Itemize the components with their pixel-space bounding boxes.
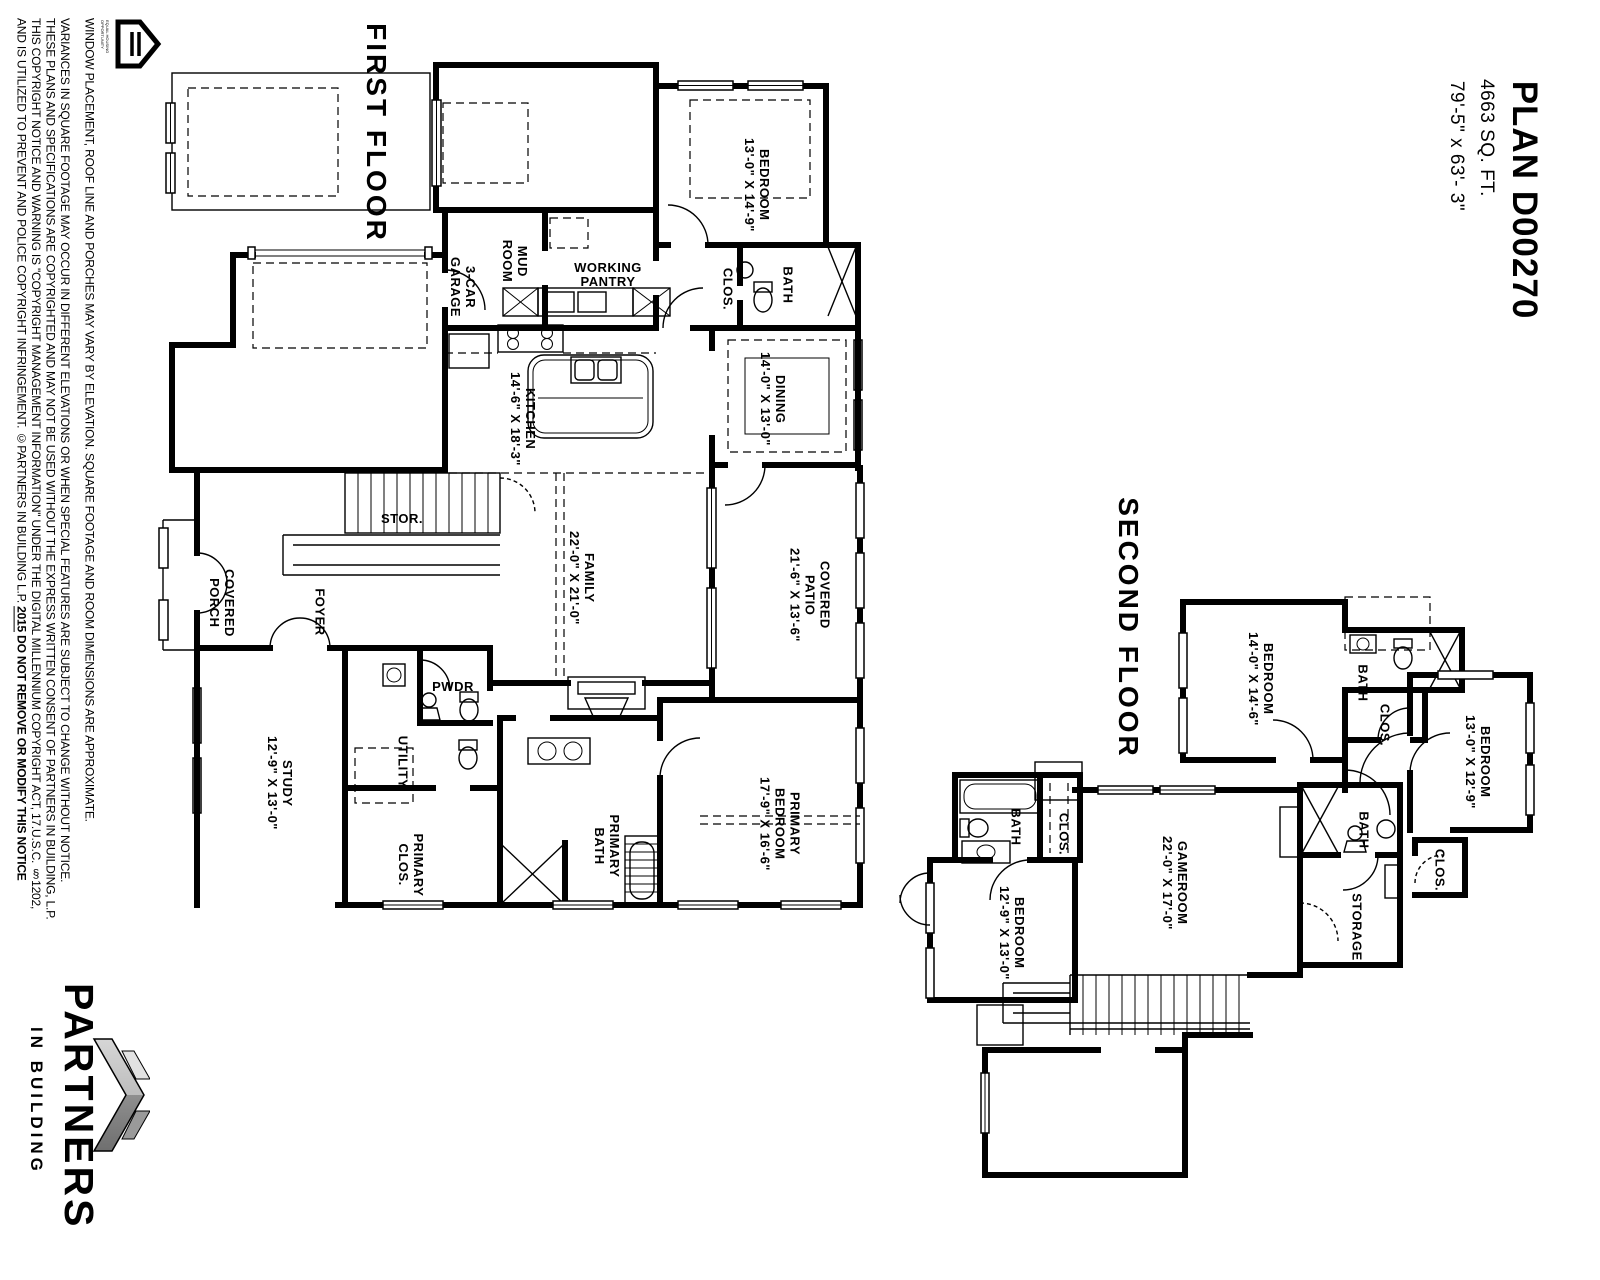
room-dims: 12'-9" X 13'-0"	[265, 736, 280, 830]
room-name: PORCH	[207, 569, 222, 637]
room-name: PANTRY	[574, 275, 642, 289]
disclaimer-line: THESE PLANS AND SPECIFICATIONS ARE COPYR…	[43, 18, 58, 993]
equal-housing-caption: EQUAL HOUSING OPPORTUNITY	[100, 20, 110, 76]
room-name: WORKING	[574, 261, 642, 275]
copyright-disclaimer: WINDOW PLACEMENT, ROOF LINE AND PORCHES …	[14, 18, 97, 993]
room-label-kitchen: KITCHEN 14'-6" X 18'-3"	[508, 372, 538, 466]
second-floor-plan-drawing	[898, 553, 1543, 1243]
room-dims: 14'-6" X 18'-3"	[508, 372, 523, 466]
room-dims: 14'-0" X 14'-6"	[1246, 632, 1261, 726]
room-label-clos-c: CLOS.	[1057, 813, 1072, 855]
room-label-clos-b: CLOS.	[1433, 849, 1448, 891]
room-dims: 22'-0" X 21'-0"	[567, 531, 582, 625]
plan-area: 4663 SQ. FT.	[1475, 79, 1497, 197]
room-name: CLOS.	[1378, 704, 1393, 746]
room-name: UTILITY	[396, 736, 411, 789]
partners-in-building-logo: PARTNERS IN BUILDING	[12, 975, 142, 1235]
room-label-bath-b: BATH	[1357, 811, 1372, 848]
room-label-pwdr: PWDR	[432, 680, 474, 694]
room-name: STOR.	[381, 512, 423, 526]
room-label-bath-a: BATH	[1356, 664, 1371, 701]
room-name: BATH	[592, 815, 607, 878]
room-name: GARAGE	[448, 257, 463, 317]
disclaimer-line: THIS COPYRIGHT NOTICE AND WARNING IS "CO…	[29, 18, 44, 993]
disclaimer-warning: DO NOT REMOVE OR MODIFY THIS NOTICE	[15, 632, 29, 881]
room-name: ROOM	[500, 240, 515, 282]
room-label-bedroom-1f: BEDROOM 13'-0" X 14'-9"	[742, 138, 772, 232]
disclaimer-year: 2015	[15, 606, 29, 632]
room-label-bedroom-c: BEDROOM 12'-9" X 13'-0"	[997, 886, 1027, 980]
room-name: BEDROOM	[757, 138, 772, 232]
room-name: BEDROOM	[1261, 632, 1276, 726]
room-name: PRIMARY	[411, 834, 426, 897]
room-name: BATH	[781, 266, 796, 303]
disclaimer-text: AND IS UTILIZED TO PREVENT AND POLICE CO…	[15, 18, 29, 606]
room-dims: 13'-0" X 14'-9"	[742, 138, 757, 232]
room-name: STUDY	[280, 736, 295, 830]
room-label-dining: DINING 14'-0" X 13'-0"	[758, 352, 788, 446]
room-label-mud-room: MUD ROOM	[500, 240, 530, 282]
room-dims: 14'-0" X 13'-0"	[758, 352, 773, 446]
room-name: CLOS.	[1433, 849, 1448, 891]
room-label-family: FAMILY 22'-0" X 21'-0"	[567, 531, 597, 625]
room-dims: 17'-9" X 16'-6"	[758, 777, 773, 871]
room-name: PWDR	[432, 680, 474, 694]
room-name: CLOS.	[721, 268, 736, 310]
room-label-clos-a: CLOS.	[1378, 704, 1393, 746]
room-dims: 13'-0" X 12'-9"	[1463, 715, 1478, 809]
logo-tagline: IN BUILDING	[26, 1027, 46, 1175]
room-name: BEDROOM	[1478, 715, 1493, 809]
room-name: GAMEROOM	[1175, 836, 1190, 930]
room-name: STORAGE	[1350, 893, 1365, 961]
room-name: BATH	[1357, 811, 1372, 848]
room-name: PATIO	[803, 548, 818, 642]
disclaimer-line: AND IS UTILIZED TO PREVENT AND POLICE CO…	[14, 18, 29, 993]
room-label-gameroom: GAMEROOM 22'-0" X 17'-0"	[1160, 836, 1190, 930]
room-label-primary-bath: PRIMARY BATH	[592, 815, 622, 878]
room-label-foyer: FOYER	[313, 588, 328, 635]
room-dims: 12'-9" X 13'-0"	[997, 886, 1012, 980]
room-label-primary-bedroom: PRIMARY BEDROOM 17'-9" X 16'-6"	[758, 777, 803, 871]
room-label-clos-1f: CLOS.	[721, 268, 736, 310]
room-name: DINING	[773, 352, 788, 446]
room-label-primary-clos: PRIMARY CLOS.	[396, 834, 426, 897]
floor-plan-sheet: WINDOW PLACEMENT, ROOF LINE AND PORCHES …	[0, 0, 1600, 1280]
plan-dimensions: 79'-5" x 63'- 3"	[1445, 81, 1467, 211]
equal-housing-house-icon	[110, 14, 164, 74]
room-label-study: STUDY 12'-9" X 13'-0"	[265, 736, 295, 830]
room-name: FAMILY	[582, 531, 597, 625]
room-name: BATH	[1356, 664, 1371, 701]
room-dims: 22'-0" X 17'-0"	[1160, 836, 1175, 930]
room-name: 3-CAR	[463, 257, 478, 317]
room-name: KITCHEN	[523, 372, 538, 466]
room-label-bath-1f: BATH	[781, 266, 796, 303]
room-label-stor: STOR.	[381, 512, 423, 526]
room-name: BEDROOM	[1012, 886, 1027, 980]
room-name: COVERED	[222, 569, 237, 637]
room-label-bedroom-b: BEDROOM 13'-0" X 12'-9"	[1463, 715, 1493, 809]
room-label-bedroom-a: BEDROOM 14'-0" X 14'-6"	[1246, 632, 1276, 726]
disclaimer-line: WINDOW PLACEMENT, ROOF LINE AND PORCHES …	[82, 18, 97, 993]
room-dims: 21'-6" X 13'-6"	[788, 548, 803, 642]
logo-chevron-icon	[92, 1037, 150, 1157]
room-label-covered-porch: COVERED PORCH	[207, 569, 237, 637]
equal-housing-icon: EQUAL HOUSING OPPORTUNITY	[100, 14, 164, 76]
room-label-bath-c: BATH	[1009, 808, 1024, 845]
room-name: PRIMARY	[607, 815, 622, 878]
room-name: MUD	[515, 240, 530, 282]
room-label-utility: UTILITY	[396, 736, 411, 789]
room-label-storage: STORAGE	[1350, 893, 1365, 961]
second-floor-title: SECOND FLOOR	[1112, 497, 1144, 759]
room-name: COVERED	[818, 548, 833, 642]
room-label-garage: 3-CAR GARAGE	[448, 257, 478, 317]
room-name: FOYER	[313, 588, 328, 635]
room-name: CLOS.	[1057, 813, 1072, 855]
room-name: CLOS.	[396, 834, 411, 897]
room-name: BEDROOM	[773, 777, 788, 871]
plan-number-title: PLAN D00270	[1504, 81, 1544, 320]
room-name: PRIMARY	[788, 777, 803, 871]
disclaimer-line: VARIANCES IN SQUARE FOOTAGE MAY OCCUR IN…	[58, 18, 73, 993]
room-label-covered-patio: COVERED PATIO 21'-6" X 13'-6"	[788, 548, 833, 642]
room-label-working-pantry: WORKING PANTRY	[574, 261, 642, 289]
room-name: BATH	[1009, 808, 1024, 845]
first-floor-title: FIRST FLOOR	[360, 23, 392, 243]
